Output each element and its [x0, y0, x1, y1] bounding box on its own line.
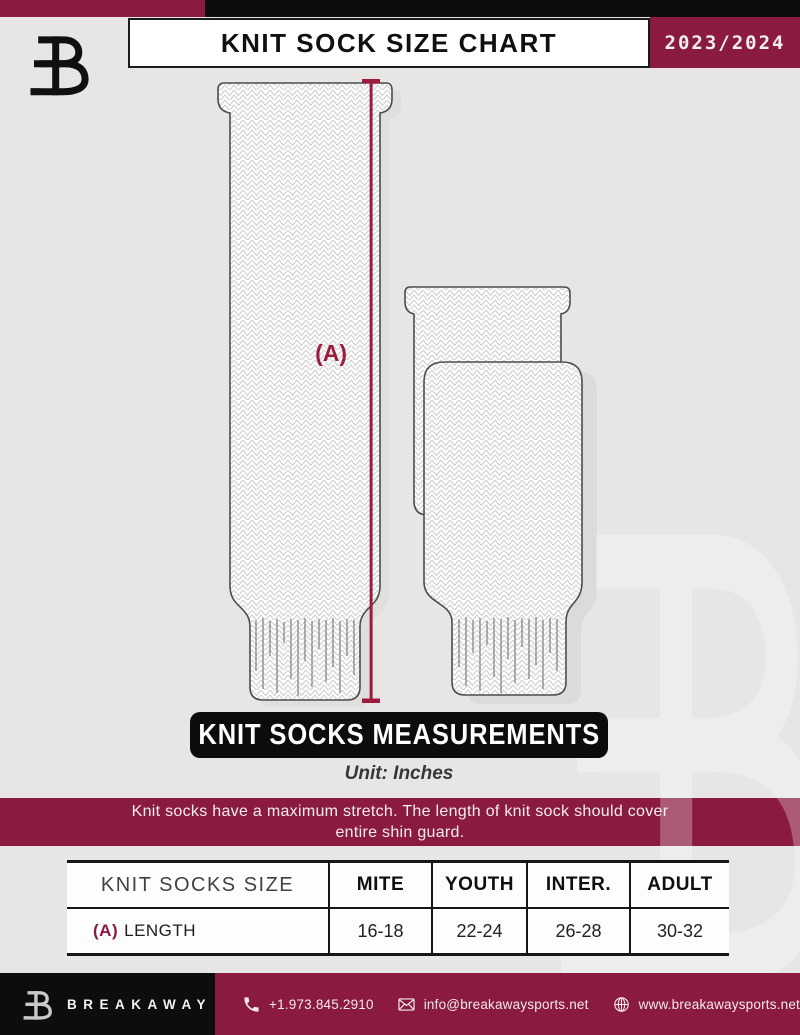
table-header-size: KNIT SOCKS SIZE: [67, 862, 329, 909]
measurement-label: (A): [315, 340, 347, 366]
footer-breakaway-logo: [22, 986, 56, 1022]
measurements-banner-label: KNIT SOCKS MEASUREMENTS: [198, 719, 600, 752]
season-badge: 2023/2024: [650, 17, 800, 68]
size-chart-page: KNIT SOCK SIZE CHART 2023/2024: [0, 0, 800, 1035]
table-row-length: (A)LENGTH 16-18 22-24 26-28 30-32: [67, 908, 729, 955]
top-strip-black: [205, 0, 800, 17]
row-label-prefix: (A): [93, 921, 118, 940]
row-label-text: LENGTH: [124, 921, 196, 940]
phone-icon: [242, 995, 261, 1014]
mail-icon: [397, 995, 416, 1014]
unit-note: Unit: Inches: [190, 763, 608, 785]
notice-line-2: entire shin guard.: [0, 822, 800, 843]
table-header-youth: YOUTH: [432, 862, 527, 909]
measurements-banner: KNIT SOCKS MEASUREMENTS: [190, 712, 608, 758]
size-table: KNIT SOCKS SIZE MITE YOUTH INTER. ADULT …: [67, 860, 729, 956]
table-cell-inter: 26-28: [527, 908, 630, 955]
big-sock: [218, 83, 392, 700]
footer-contacts: +1.973.845.2910 info@breakawaysports.net…: [215, 973, 800, 1035]
row-label-length: (A)LENGTH: [67, 908, 329, 955]
table-header-adult: ADULT: [630, 862, 729, 909]
stretch-notice: Knit socks have a maximum stretch. The l…: [0, 798, 800, 846]
page-title-box: KNIT SOCK SIZE CHART: [128, 18, 650, 68]
website-url: www.breakawaysports.net: [639, 997, 800, 1012]
phone-number: +1.973.845.2910: [269, 997, 374, 1012]
table-header-mite: MITE: [329, 862, 432, 909]
front-sock: [424, 362, 582, 695]
brand-name: BREAKAWAY: [67, 997, 212, 1012]
footer-brand-box: BREAKAWAY: [0, 973, 215, 1035]
page-title: KNIT SOCK SIZE CHART: [221, 28, 557, 59]
email-item[interactable]: info@breakawaysports.net: [397, 995, 589, 1014]
phone-item[interactable]: +1.973.845.2910: [242, 995, 374, 1014]
top-strip-maroon: [0, 0, 205, 17]
email-address: info@breakawaysports.net: [424, 997, 589, 1012]
table-header-inter: INTER.: [527, 862, 630, 909]
table-cell-mite: 16-18: [329, 908, 432, 955]
season-label: 2023/2024: [665, 32, 786, 54]
notice-line-1: Knit socks have a maximum stretch. The l…: [0, 801, 800, 822]
globe-icon: [612, 995, 631, 1014]
website-item[interactable]: www.breakawaysports.net: [612, 995, 800, 1014]
footer: BREAKAWAY +1.973.845.2910 info@breakaway…: [0, 973, 800, 1035]
table-header-row: KNIT SOCKS SIZE MITE YOUTH INTER. ADULT: [67, 862, 729, 909]
sock-diagram: (A): [0, 70, 800, 710]
table-cell-youth: 22-24: [432, 908, 527, 955]
table-cell-adult: 30-32: [630, 908, 729, 955]
